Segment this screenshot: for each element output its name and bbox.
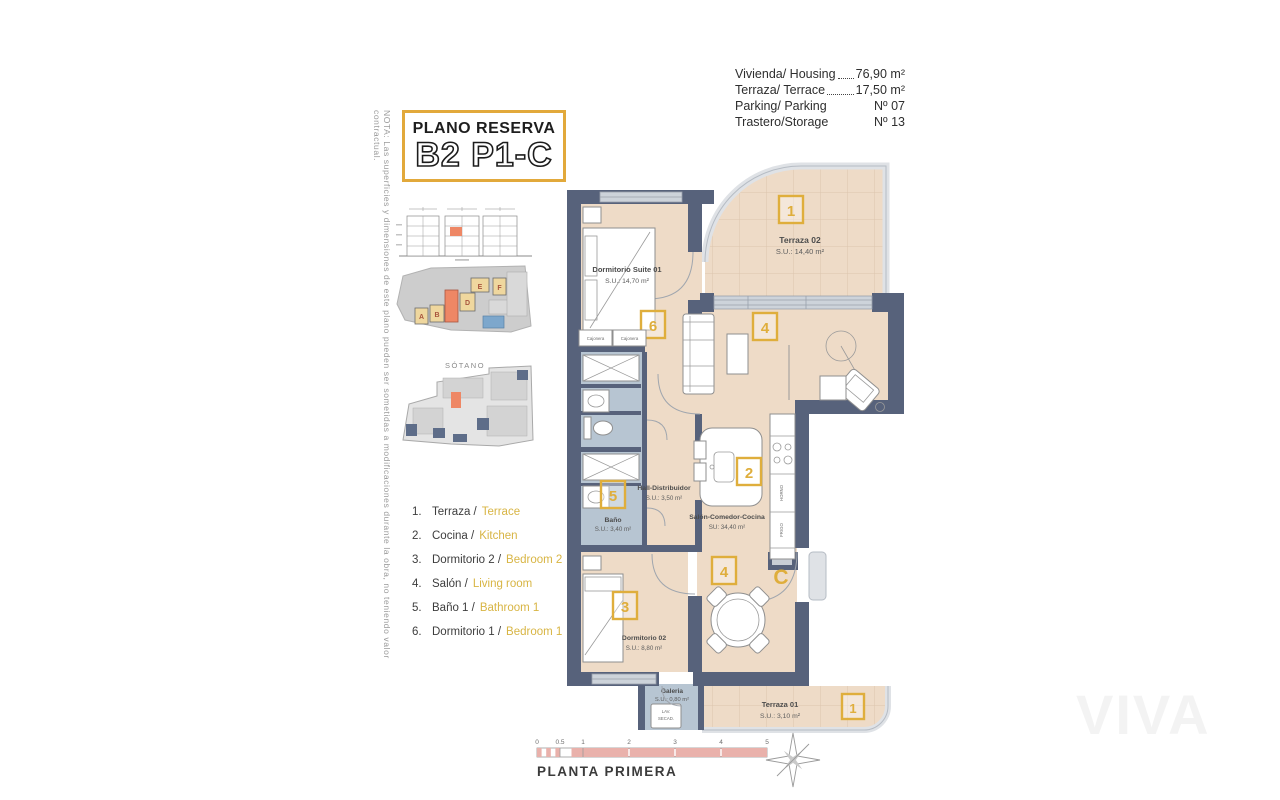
galeria-area: S.U.: 0,80 m² <box>655 697 689 703</box>
info-row-parking: Parking/ ParkingNº 07 <box>735 98 905 114</box>
highlighted-unit-block <box>445 290 458 322</box>
svg-text:4: 4 <box>720 564 729 581</box>
floor-plan-drawing: 1 Terraza 02 S.U.: 14,40 m² Galeria S.U.… <box>530 140 930 790</box>
block-f-label: F <box>497 285 502 292</box>
coffee-table <box>727 334 748 374</box>
dormitorio-suite-01: Dormitorio Suite 01 S.U.: 14,70 m² 6 Caj… <box>579 207 665 346</box>
terraza-01-name: Terraza 01 <box>762 700 799 709</box>
bano-name: Baño <box>605 517 622 524</box>
hall-area: S.U.: 3,50 m² <box>646 495 682 502</box>
dorm2-area: S.U.: 8,80 m² <box>626 645 662 652</box>
svg-text:6: 6 <box>649 318 657 335</box>
svg-text:5: 5 <box>765 739 769 746</box>
dotted-leader <box>838 78 854 79</box>
building-elevation-diagram <box>396 207 532 261</box>
svg-text:Cajonera: Cajonera <box>621 336 639 341</box>
svg-text:5: 5 <box>609 488 617 505</box>
block-e-label: E <box>478 284 483 291</box>
north-compass-icon <box>766 733 820 787</box>
wardrobe-drawers: Cajonera Cajonera <box>579 330 646 346</box>
dining-table <box>706 586 771 655</box>
galeria-name: Galeria <box>661 688 683 695</box>
floor-plan-sheet: { "note": "NOTA: Las superficies y dimen… <box>0 0 1280 800</box>
suite-area: S.U.: 14,70 m² <box>605 278 650 285</box>
sotano-label: SÓTANO <box>445 361 485 370</box>
site-plan-diagram: A B D E F <box>397 266 531 332</box>
svg-text:2: 2 <box>745 465 753 482</box>
salon-name: Salón-Comedor-Cocina <box>689 514 765 521</box>
watermark: VIVA <box>1076 682 1211 747</box>
bano-area: S.U.: 3,40 m² <box>595 526 631 533</box>
sidebar-diagrams: A B D E F SÓTANO <box>393 198 538 466</box>
suite-name: Dormitorio Suite 01 <box>592 265 661 274</box>
block-a-label: A <box>419 314 424 321</box>
oven-label: HORNO <box>779 484 784 501</box>
galeria: Galeria S.U.: 0,80 m² LAV. SECAD. <box>645 684 700 730</box>
svg-text:3: 3 <box>673 739 677 746</box>
pool <box>483 316 504 328</box>
nightstand <box>583 207 601 223</box>
sink <box>583 390 609 412</box>
terraza-01: 1 Terraza 01 S.U.: 3,10 m² <box>702 686 888 730</box>
info-row-storage: Trastero/StorageNº 13 <box>735 114 905 130</box>
highlighted-unit-cell <box>450 227 462 236</box>
kitchen-counter: HORNO FRIGO <box>770 414 795 559</box>
svg-text:1: 1 <box>849 701 856 716</box>
dotted-leader <box>827 94 854 95</box>
svg-text:0.5: 0.5 <box>555 739 564 746</box>
washer-label: LAV. <box>662 709 671 714</box>
terraza-02-name: Terraza 02 <box>779 235 821 245</box>
dryer-label: SECAD. <box>658 716 674 721</box>
pouf <box>820 376 846 400</box>
svg-text:4: 4 <box>719 739 723 746</box>
svg-text:4: 4 <box>761 320 770 337</box>
scale-bar: 0 0.5 1 2 3 4 5 <box>535 739 769 757</box>
nightstand <box>583 556 601 570</box>
info-row-housing: Vivienda/ Housing76,90 m² <box>735 66 905 82</box>
basement-plan-diagram: SÓTANO <box>403 361 533 446</box>
svg-text:3: 3 <box>621 599 629 616</box>
plan-name: PLANTA PRIMERA <box>537 764 677 779</box>
dorm2-name: Dormitorio 02 <box>622 635 666 642</box>
highlighted-storage-cell <box>451 392 461 408</box>
hall-name: Hall-Distribuidor <box>637 485 691 492</box>
svg-text:0: 0 <box>535 739 539 746</box>
surface-info-block: Vivienda/ Housing76,90 m² Terraza/ Terra… <box>735 66 905 130</box>
svg-text:2: 2 <box>627 739 631 746</box>
disclaimer-note: NOTA: Las superficies y dimensiones de e… <box>376 110 392 670</box>
terraza-01-area: S.U.: 3,10 m² <box>760 713 801 720</box>
info-row-terrace: Terraza/ Terrace17,50 m² <box>735 82 905 98</box>
svg-text:Cajonera: Cajonera <box>587 336 605 341</box>
terraza-02-area: S.U.: 14,40 m² <box>776 247 825 256</box>
terraza-02: 1 Terraza 02 S.U.: 14,40 m² <box>705 166 886 300</box>
block-d-label: D <box>465 300 470 307</box>
block-b-label: B <box>434 312 439 319</box>
entry-door-label: C <box>773 566 788 589</box>
salon-area: SU: 34,40 m² <box>709 524 745 531</box>
sofa <box>683 314 714 394</box>
fridge-label: FRIGO <box>779 523 784 537</box>
svg-text:1: 1 <box>581 739 585 746</box>
svg-text:1: 1 <box>787 203 795 220</box>
